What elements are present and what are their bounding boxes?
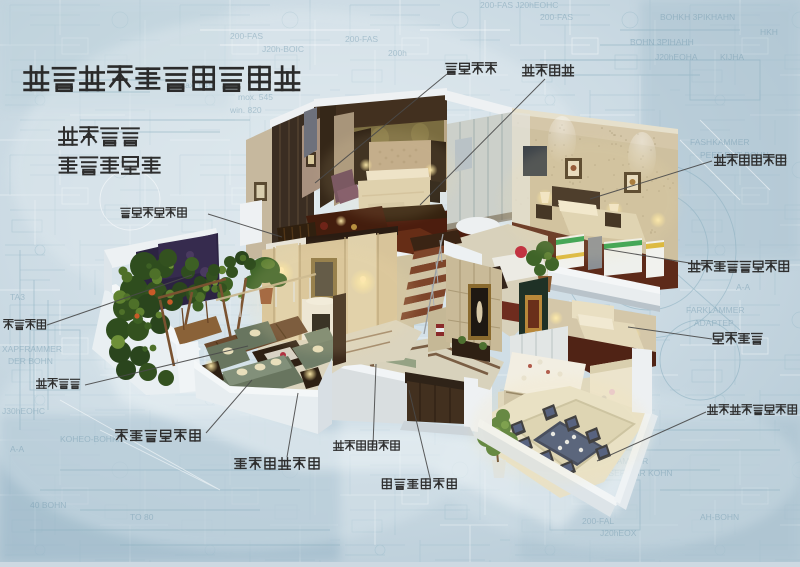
svg-text:J30hEOHC: J30hEOHC xyxy=(2,406,45,416)
svg-text:FASHKAMMER: FASHKAMMER xyxy=(690,137,750,147)
svg-text:DER BOHN: DER BOHN xyxy=(8,356,53,366)
svg-text:J20hEOX: J20hEOX xyxy=(600,528,637,538)
svg-text:HKH: HKH xyxy=(760,27,778,37)
svg-text:BOHKH 3PIKHAHN: BOHKH 3PIKHAHN xyxy=(660,12,735,22)
svg-text:win. 820: win. 820 xyxy=(229,105,262,115)
svg-text:200-FAS: 200-FAS xyxy=(230,31,263,41)
svg-text:200h: 200h xyxy=(388,48,407,58)
svg-text:BOHN 3PIHAHH: BOHN 3PIHAHH xyxy=(630,37,694,47)
svg-text:mox. 545: mox. 545 xyxy=(238,92,273,102)
svg-text:AH-BOHN: AH-BOHN xyxy=(700,512,739,522)
svg-text:A-A: A-A xyxy=(736,282,751,292)
svg-text:KIJHA: KIJHA xyxy=(720,52,744,62)
svg-text:TO 80: TO 80 xyxy=(130,512,154,522)
svg-text:200-FAL: 200-FAL xyxy=(582,516,614,526)
svg-text:KOHEO-BOHKA: KOHEO-BOHKA xyxy=(60,434,124,444)
svg-text:FARKLAMMER: FARKLAMMER xyxy=(686,305,745,315)
svg-text:XAPFRAMMER: XAPFRAMMER xyxy=(2,344,62,354)
svg-text:ADAPTEP: ADAPTEP xyxy=(694,318,734,328)
svg-text:J20hEOHA: J20hEOHA xyxy=(655,52,698,62)
svg-text:TA3: TA3 xyxy=(10,292,25,302)
svg-text:200-FAS J20hEOHC: 200-FAS J20hEOHC xyxy=(480,0,558,10)
svg-text:A-A: A-A xyxy=(10,444,25,454)
svg-text:J20h-BOIC: J20h-BOIC xyxy=(262,44,304,54)
svg-text:40 BOHN: 40 BOHN xyxy=(30,500,66,510)
svg-text:200-FAS: 200-FAS xyxy=(540,12,573,22)
svg-text:200-FAS: 200-FAS xyxy=(345,34,378,44)
